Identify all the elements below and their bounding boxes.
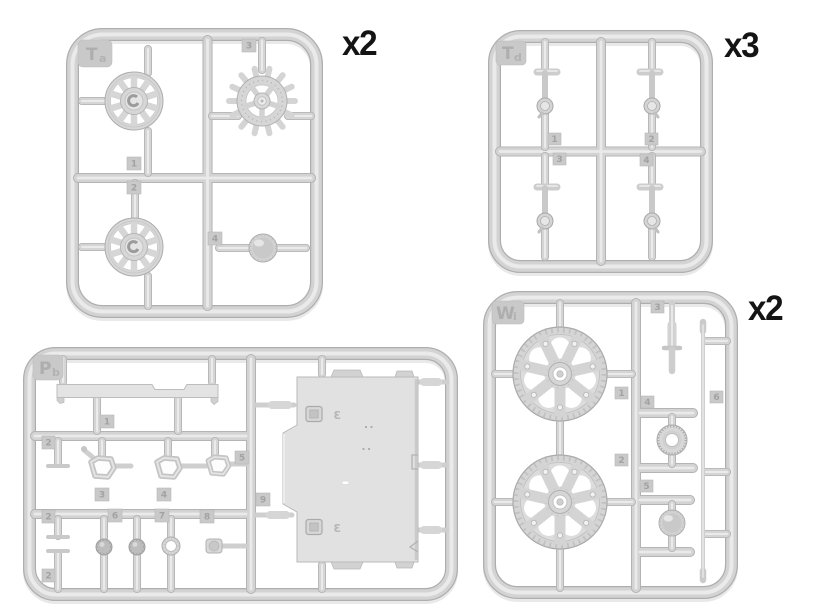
sprue-td-frame [495,37,707,267]
panel-hatch [306,407,322,422]
part-chip: 7 [159,512,165,522]
part-chip: 1 [131,160,137,170]
part-chip: 8 [204,513,210,523]
sprue-td-letter: T [502,44,514,64]
idler-wheel-part [105,72,163,130]
quantity-label-sprue-wi: x2 [748,291,782,326]
sprue-pb-letter: P [39,359,51,379]
part-chip: 6 [713,393,719,403]
sprue-pb: 3 3 P b 1 2 5 3 4 2 6 7 8 9 2 [30,354,452,598]
part-chip: 1 [551,135,557,145]
road-wheel-part [513,327,607,421]
dome-cap-part [659,510,685,536]
sprue-td-letter-tag: T d [496,41,526,65]
swing-arm-part [640,71,660,117]
part-chip: 2 [45,513,51,523]
sprue-layout-page: T a 3 1 2 4 T [0,0,820,615]
part-chip: 2 [131,184,137,194]
part-chip: 1 [104,418,110,428]
drive-sprocket-part [229,69,295,133]
bracket-gate-ball [81,446,87,452]
panel-hatch-2 [306,520,322,535]
hull-panel-part: 3 3 [283,370,418,569]
swing-arm-part [537,71,557,117]
sprue-ta-letter-tag: T a [78,40,112,67]
shock-absorber-part [664,303,680,371]
cross-member-bar-part [57,385,218,405]
part-chip: 3 [246,42,252,52]
part-chip: 9 [260,496,266,506]
part-chip: 5 [643,482,649,492]
part-chip: 5 [239,454,245,464]
sprue-ta: T a 3 1 2 4 [73,35,317,315]
part-chip: 3 [556,155,562,165]
quantity-label-sprue-td: x3 [724,28,758,63]
part-chip: 3 [99,491,105,501]
quantity-label-sprue-ta: x2 [342,26,376,61]
part-chip: 4 [643,156,649,166]
panel-molded-number-2: 3 [333,522,341,535]
sprue-wi-letter-tag: W i [492,301,524,324]
sprue-td-letter-sub: d [514,51,522,64]
part-chip: 4 [161,491,167,501]
bracket-part-3 [208,457,229,474]
idler-wheel-part-2 [105,218,163,276]
part-chip: 2 [648,135,654,145]
panel-molded-number: 3 [333,409,341,422]
part-chip: 1 [618,389,624,399]
part-chip: 6 [112,512,118,522]
toothed-hub-part [657,425,687,455]
square-fitting-part [206,539,222,553]
part-chip: 3 [654,303,660,313]
sprue-wi: W i 3 1 4 6 2 5 [490,298,732,596]
part-chip: 2 [618,456,624,466]
small-dome-part-2 [129,539,145,555]
small-dome-part [96,539,112,555]
sprue-wi-letter-sub: i [513,310,517,323]
hub-cap-part [249,234,277,262]
swing-arm-part [640,186,660,232]
part-chip: 4 [644,398,650,408]
swing-arm-part [537,186,557,232]
sprue-ta-letter-sub: a [99,52,106,65]
ring-part [162,537,180,555]
sprue-ta-letter: T [86,45,98,65]
part-chip: 4 [212,235,218,245]
sprue-pb-letter-sub: b [52,366,60,379]
road-wheel-part-2 [513,455,607,549]
part-chip: 2 [45,439,51,449]
sprue-pb-letter-tag: P b [33,355,63,380]
bracket-part-2 [157,458,180,477]
sprue-td: T d 1 2 3 4 [495,37,707,270]
part-chip: 2 [45,572,51,582]
bracket-part [91,458,114,477]
sprue-diagram: T a 3 1 2 4 T [0,0,820,615]
